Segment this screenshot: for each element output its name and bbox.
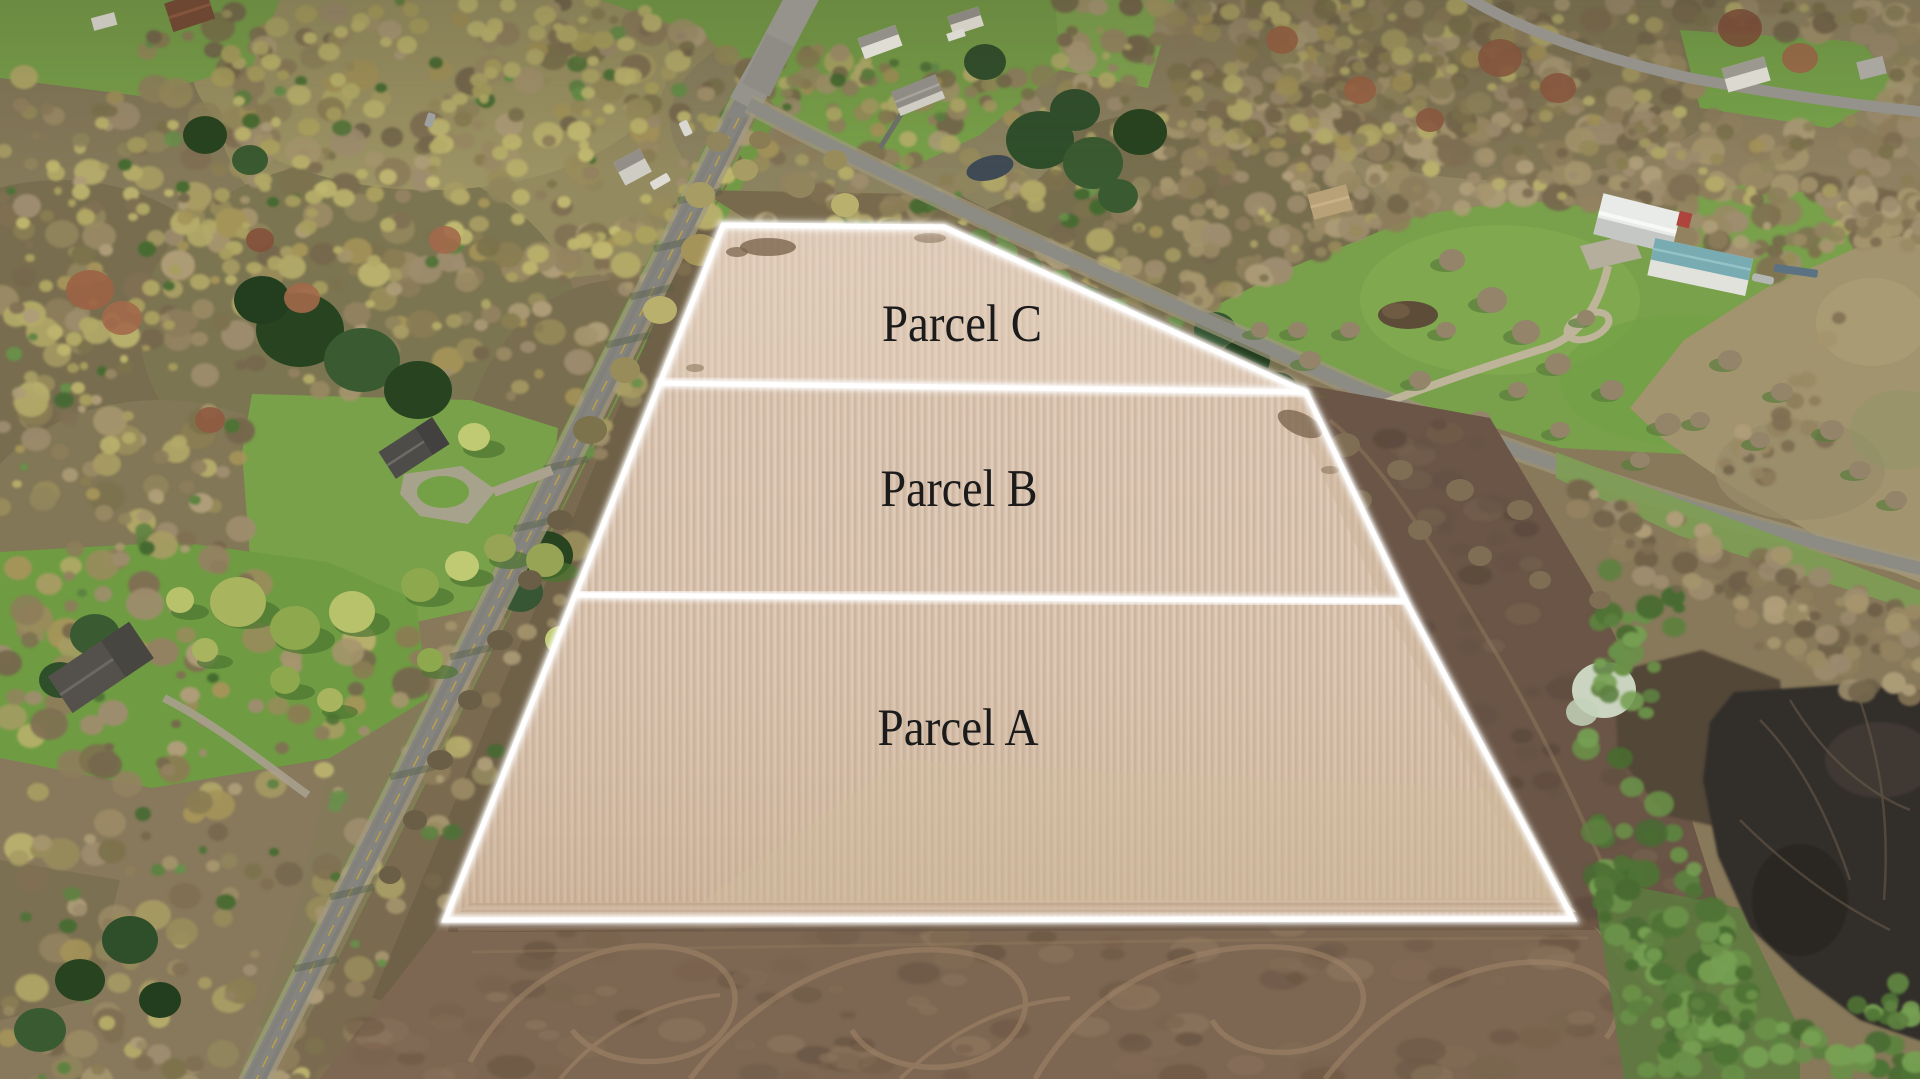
svg-text:Parcel C: Parcel C bbox=[882, 295, 1042, 353]
svg-text:Parcel B: Parcel B bbox=[881, 460, 1038, 518]
svg-text:Parcel A: Parcel A bbox=[878, 699, 1039, 757]
